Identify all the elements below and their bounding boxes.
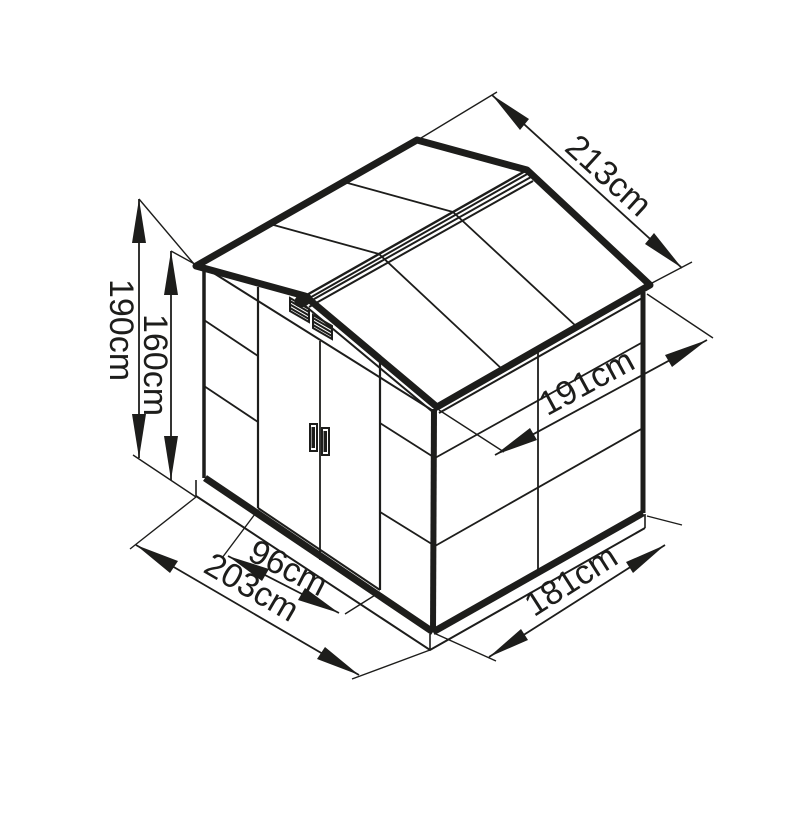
dim-label-eave-height: 160cm	[136, 314, 174, 416]
dimension-base-width: 203cm	[130, 497, 430, 679]
door-handle-icon	[310, 424, 317, 451]
dimension-base-depth: 181cm	[436, 516, 682, 661]
dimension-eave-height: 160cm	[136, 251, 202, 480]
arrowhead-icon	[645, 233, 682, 268]
arrowhead-icon	[492, 95, 529, 130]
arrowhead-down-icon	[164, 436, 178, 480]
front-right-panel-seams	[380, 423, 435, 546]
arrowhead-icon	[665, 340, 707, 367]
roof-seams-left-slope	[270, 182, 453, 254]
arrowhead-icon	[489, 629, 528, 657]
dim-label-wall-depth: 191cm	[533, 341, 641, 423]
arrowhead-icon	[626, 545, 665, 573]
dimension-roof-width: 213cm	[421, 92, 692, 283]
front-bottom-edge	[205, 478, 433, 632]
extension-lines	[421, 92, 692, 283]
diagram-svg: 190cm 160cm 213cm 191cm 96cm 2	[0, 0, 806, 813]
shed-dimension-diagram: 190cm 160cm 213cm 191cm 96cm 2	[0, 0, 806, 813]
arrowhead-icon	[495, 428, 537, 455]
arrowhead-up-icon	[164, 251, 178, 295]
arrowhead-icon	[136, 545, 178, 573]
dimension-wall-depth: 191cm	[439, 294, 713, 455]
arrowhead-icon	[317, 647, 359, 675]
front-left-panel-seams	[204, 320, 258, 422]
front-right-corner-post	[433, 409, 434, 632]
door-handle-icon	[322, 428, 329, 455]
dim-label-ridge-height: 190cm	[102, 279, 140, 381]
arrowhead-down-icon	[132, 414, 146, 458]
extension-line	[171, 251, 202, 268]
